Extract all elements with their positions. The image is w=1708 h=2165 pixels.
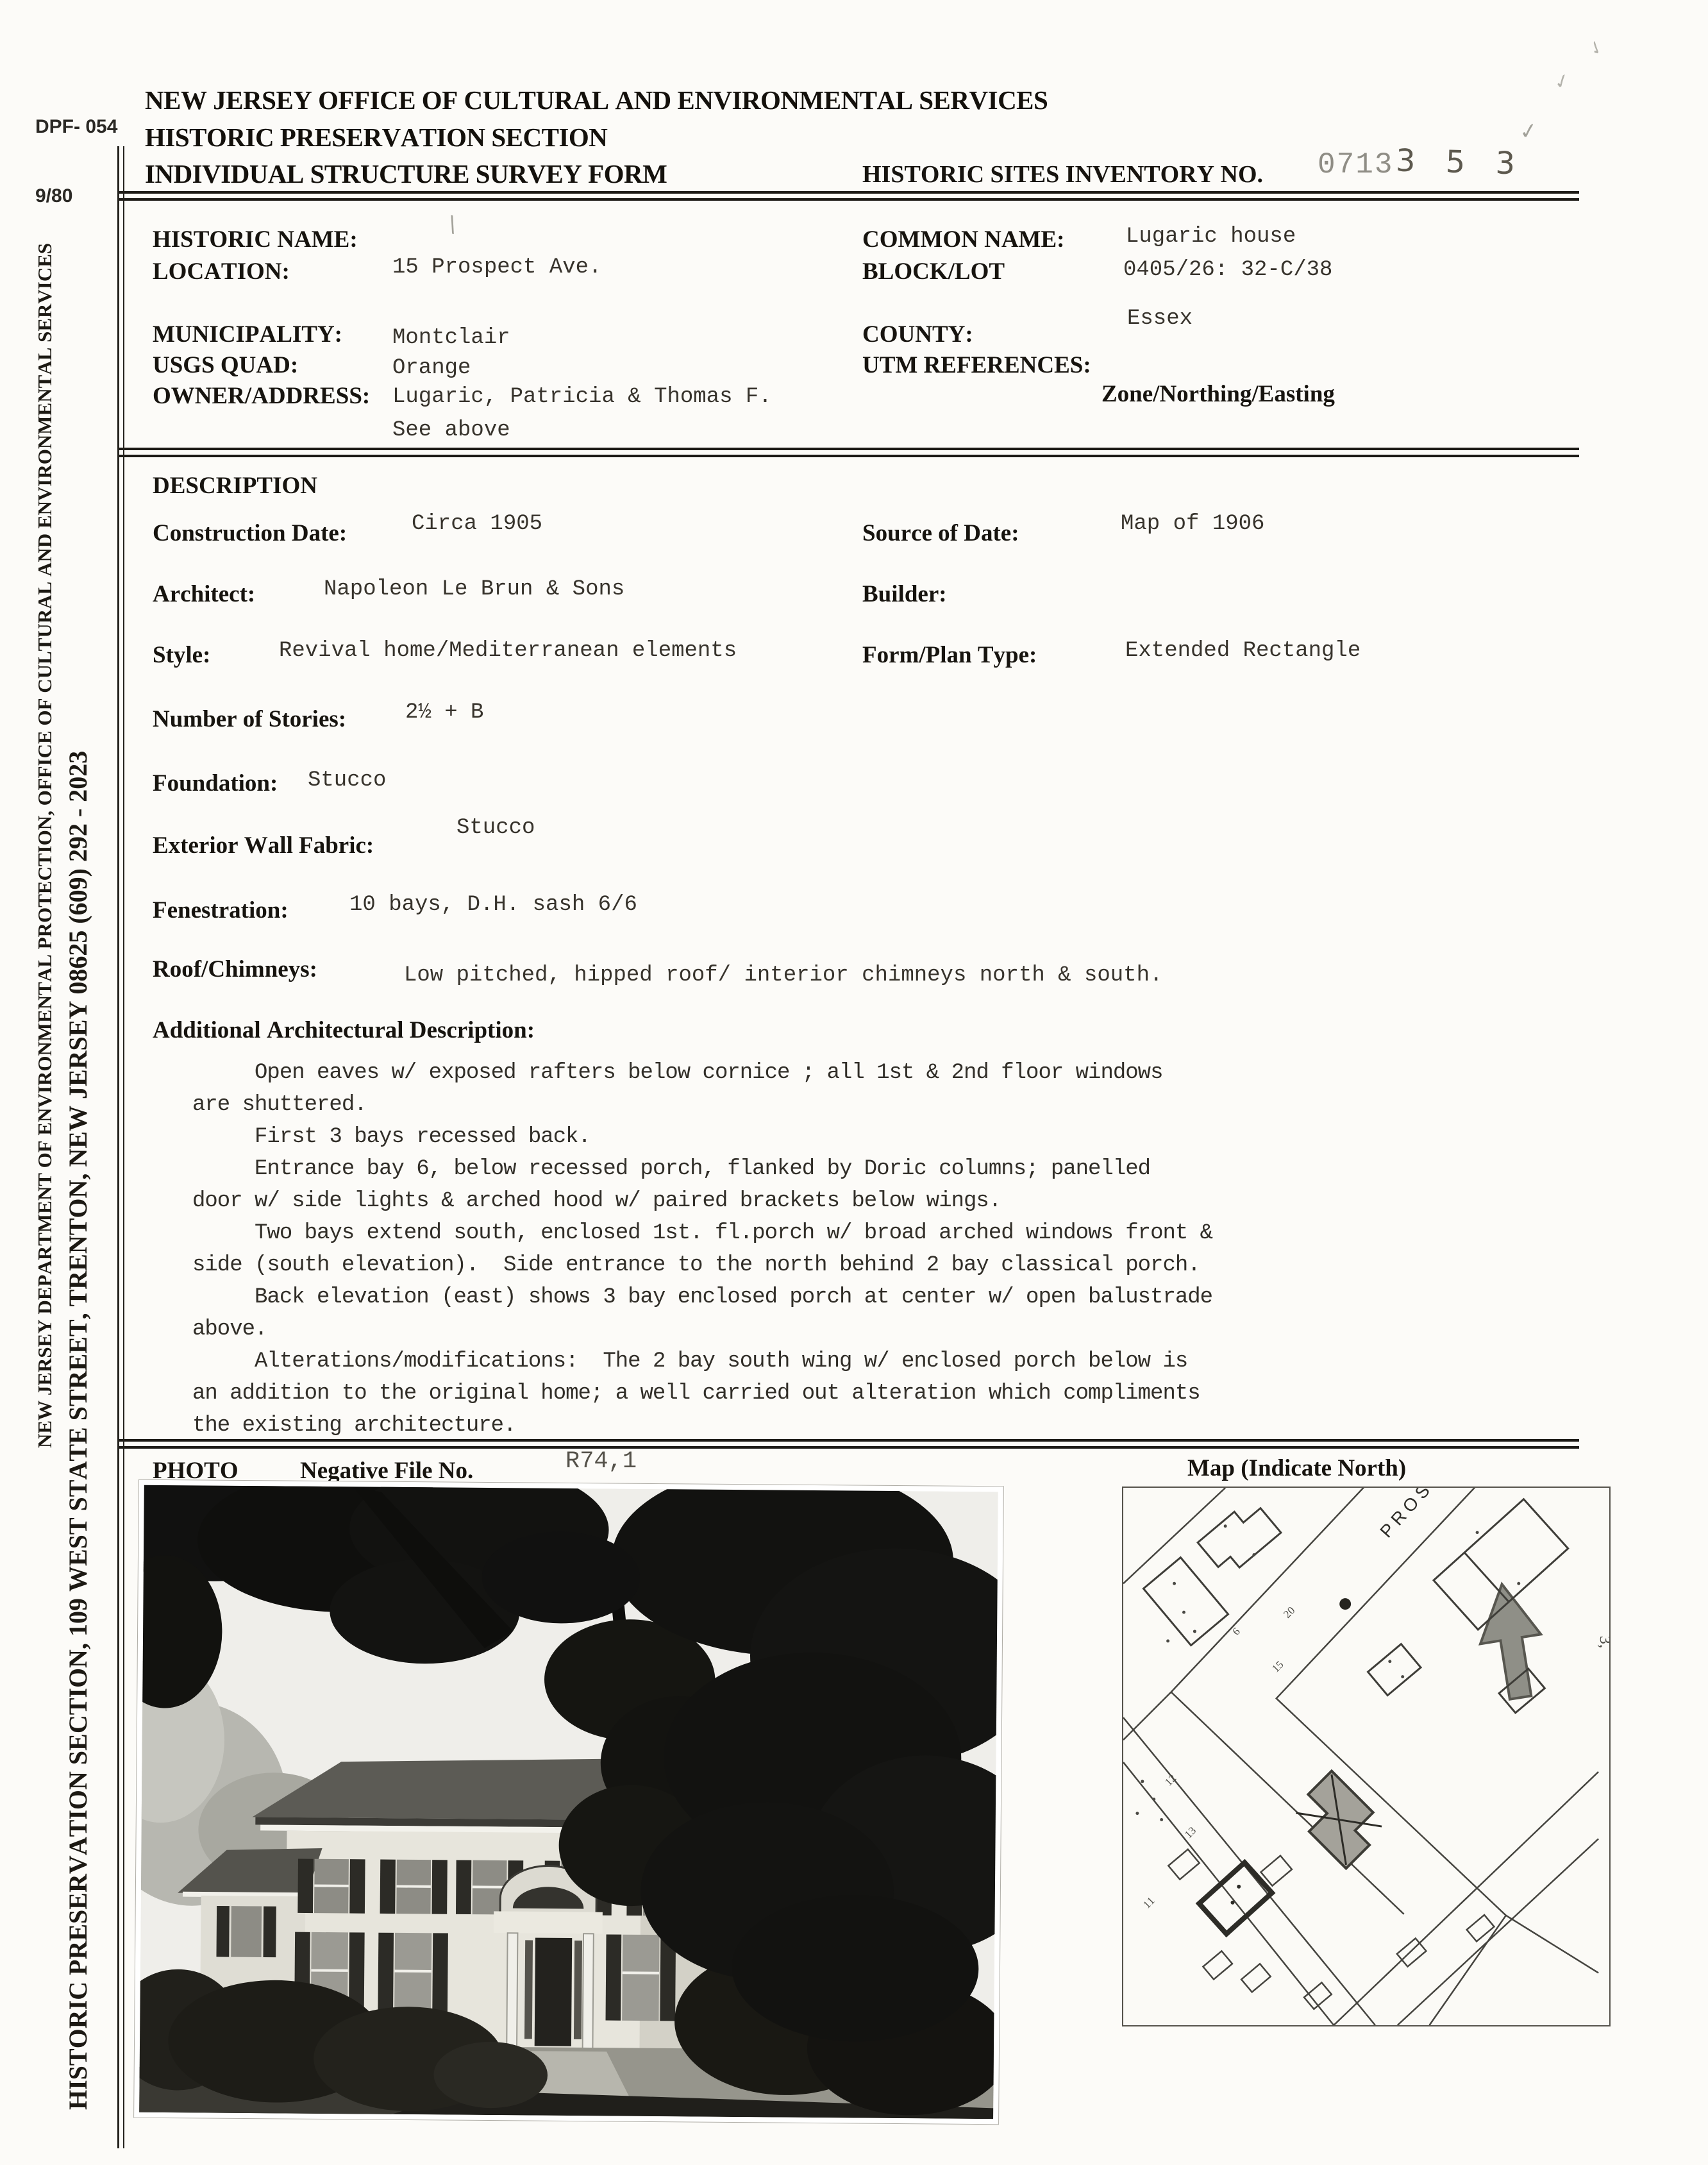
lot-number: 12 xyxy=(1162,1772,1178,1788)
inventory-number-prefix: 0713 xyxy=(1318,148,1393,181)
roof-chimneys-label: Roof/Chimneys: xyxy=(153,956,317,983)
pencil-slash-mark: \ xyxy=(446,211,459,238)
zone-northing-easting-label: Zone/Northing/Easting xyxy=(1101,380,1335,408)
lot-number: 15 xyxy=(1269,1658,1285,1674)
block-lot-value: 0405/26: 32-C/38 xyxy=(1123,258,1332,282)
survey-form-page: DPF- 054 9/80 NEW JERSEY OFFICE OF CULTU… xyxy=(0,0,1708,2165)
plot-map-illustration: PROSPECT xyxy=(1123,1488,1609,2025)
architect-value: Napoleon Le Brun & Sons xyxy=(324,577,624,602)
source-of-date-label: Source of Date: xyxy=(862,519,1019,547)
historic-name-label: HISTORIC NAME: xyxy=(153,226,358,253)
left-border-rule xyxy=(117,146,124,2148)
edge-number: 3, xyxy=(1596,1636,1609,1648)
exterior-wall-fabric-value: Stucco xyxy=(456,816,535,840)
usgs-quad-value: Orange xyxy=(392,356,471,380)
number-of-stories-value: 2½ + B xyxy=(405,700,483,725)
inventory-number: 0713 3 5 3 xyxy=(1318,144,1526,181)
usgs-quad-label: USGS QUAD: xyxy=(153,351,298,379)
sidebar-department-line: NEW JERSEY DEPARTMENT OF ENVIRONMENTAL P… xyxy=(33,243,56,1448)
plot-map: PROSPECT xyxy=(1122,1487,1611,2026)
style-value: Revival home/Mediterranean elements xyxy=(279,639,737,663)
form-number-line: DPF- 054 xyxy=(35,115,117,139)
foundation-value: Stucco xyxy=(308,768,386,793)
source-of-date-value: Map of 1906 xyxy=(1121,512,1264,536)
description-section-title: DESCRIPTION xyxy=(153,472,317,500)
utm-references-label: UTM REFERENCES: xyxy=(862,351,1091,379)
house-photograph xyxy=(133,1479,1004,2125)
county-value: Essex xyxy=(1127,307,1193,331)
construction-date-value: Circa 1905 xyxy=(412,512,542,536)
fenestration-label: Fenestration: xyxy=(153,897,289,924)
inventory-number-digits: 3 5 3 xyxy=(1396,142,1527,181)
owner-address-value2: See above xyxy=(392,418,510,442)
exterior-wall-fabric-label: Exterior Wall Fabric: xyxy=(153,832,374,859)
pencil-check-icon: ✓ xyxy=(1583,35,1609,60)
lot-number: 20 xyxy=(1281,1604,1297,1620)
municipality-value: Montclair xyxy=(392,326,510,350)
form-title: INDIVIDUAL STRUCTURE SURVEY FORM xyxy=(145,158,667,189)
section-title: HISTORIC PRESERVATION SECTION xyxy=(145,122,607,153)
style-label: Style: xyxy=(153,641,210,669)
identification-divider xyxy=(119,448,1579,457)
location-value: 15 Prospect Ave. xyxy=(392,255,601,280)
pencil-check-icon: ✓ xyxy=(1518,117,1539,146)
number-of-stories-label: Number of Stories: xyxy=(153,705,346,733)
owner-address-label: OWNER/ADDRESS: xyxy=(153,382,370,410)
lot-number: 6 xyxy=(1230,1625,1242,1637)
architect-label: Architect: xyxy=(153,580,255,608)
fenestration-value: 10 bays, D.H. sash 6/6 xyxy=(349,893,637,917)
roof-chimneys-value: Low pitched, hipped roof/ interior chimn… xyxy=(404,963,1162,988)
builder-label: Builder: xyxy=(862,580,947,608)
inventory-number-label: HISTORIC SITES INVENTORY NO. xyxy=(862,160,1263,189)
lot-number: 11 xyxy=(1141,1894,1157,1910)
construction-date-label: Construction Date: xyxy=(153,519,347,547)
pencil-check-icon: ✓ xyxy=(1551,69,1574,95)
foundation-label: Foundation: xyxy=(153,770,278,797)
house-photo-illustration xyxy=(139,1485,998,2119)
form-plan-type-value: Extended Rectangle xyxy=(1125,639,1361,663)
street-name-prospect: PROSPECT xyxy=(1376,1488,1480,1542)
additional-description-label: Additional Architectural Description: xyxy=(153,1016,535,1044)
common-name-value: Lugaric house xyxy=(1126,224,1296,249)
map-label: Map (Indicate North) xyxy=(1187,1454,1406,1482)
header-divider xyxy=(119,191,1579,201)
additional-description-text: Open eaves w/ exposed rafters below corn… xyxy=(192,1057,1346,1442)
form-number: DPF- 054 9/80 xyxy=(35,69,117,254)
municipality-label: MUNICIPALITY: xyxy=(153,321,342,348)
location-label: LOCATION: xyxy=(153,258,290,285)
form-date-line: 9/80 xyxy=(35,185,117,208)
sidebar-address-line: HISTORIC PRESERVATION SECTION, 109 WEST … xyxy=(63,751,93,2110)
common-name-label: COMMON NAME: xyxy=(862,226,1064,253)
negative-file-number: R74,1 xyxy=(565,1448,637,1475)
county-label: COUNTY: xyxy=(862,321,973,348)
agency-title: NEW JERSEY OFFICE OF CULTURAL AND ENVIRO… xyxy=(145,85,1048,115)
block-lot-label: BLOCK/LOT xyxy=(862,258,1005,285)
owner-address-value: Lugaric, Patricia & Thomas F. xyxy=(392,385,772,409)
form-plan-type-label: Form/Plan Type: xyxy=(862,641,1037,669)
